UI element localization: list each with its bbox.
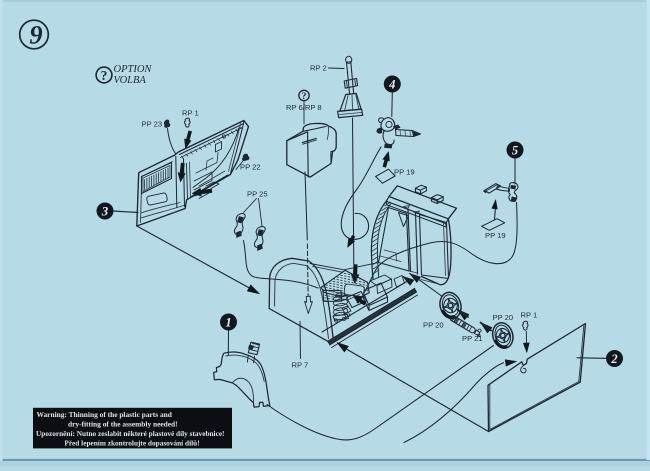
svg-text:PP 22: PP 22 bbox=[240, 163, 261, 172]
svg-text:PP 20: PP 20 bbox=[493, 313, 514, 322]
svg-text:Upozornění: Nutno zeslabit něk: Upozornění: Nutno zeslabit některé plast… bbox=[36, 429, 225, 438]
svg-text:5: 5 bbox=[512, 143, 518, 157]
svg-text:PP 19: PP 19 bbox=[394, 168, 415, 177]
svg-text:3: 3 bbox=[101, 204, 108, 218]
svg-text:RP 7: RP 7 bbox=[292, 361, 309, 370]
svg-text:dry-fitting of the assembly ne: dry-fitting of the assembly needed! bbox=[68, 420, 178, 429]
svg-text:?: ? bbox=[302, 92, 307, 102]
svg-text:PP 19: PP 19 bbox=[485, 231, 506, 240]
svg-text:RP 1: RP 1 bbox=[521, 311, 538, 320]
svg-text:?: ? bbox=[101, 68, 108, 83]
svg-text:RP 2: RP 2 bbox=[310, 64, 327, 73]
svg-text:9: 9 bbox=[29, 20, 42, 50]
svg-text:VOLBA: VOLBA bbox=[114, 75, 147, 86]
svg-text:RP 1: RP 1 bbox=[182, 109, 199, 118]
svg-text:4: 4 bbox=[388, 77, 395, 91]
svg-text:PP 23: PP 23 bbox=[142, 120, 163, 129]
svg-text:PP 20: PP 20 bbox=[423, 320, 444, 329]
svg-text:PP 21: PP 21 bbox=[462, 334, 483, 343]
svg-text:Warning: Thinning of the plast: Warning: Thinning of the plastic parts a… bbox=[37, 410, 173, 419]
svg-text:OPTION: OPTION bbox=[114, 64, 153, 75]
svg-text:Před lepením zkontrolujte dopa: Před lepením zkontrolujte dopasování dil… bbox=[64, 439, 199, 448]
svg-text:2: 2 bbox=[610, 352, 617, 366]
svg-text:PP 25: PP 25 bbox=[247, 190, 268, 199]
svg-text:1: 1 bbox=[225, 315, 231, 329]
